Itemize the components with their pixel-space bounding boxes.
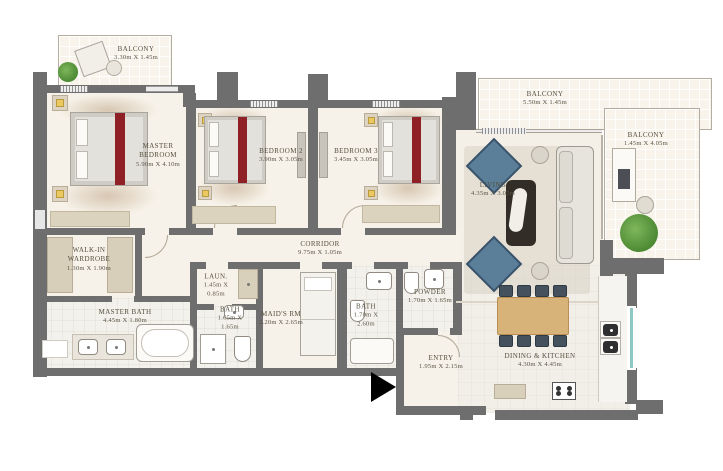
lamp-icon: [368, 190, 375, 197]
room-name: BEDROOM 2: [241, 147, 321, 156]
pillow: [209, 122, 219, 147]
washer: [238, 269, 258, 299]
room-name: BALCONY: [622, 131, 670, 140]
pillow: [304, 277, 332, 291]
bathtub-inner: [141, 329, 189, 357]
room-dims: 4.45m X 1.80m: [77, 317, 173, 326]
wardrobe: [50, 211, 130, 227]
shower-tub: [350, 338, 394, 364]
floor-plan: BALCONY 3.30m X 1.45m MASTER BEDROOM 5.9…: [0, 0, 723, 471]
room-dims: 4.35m X 3.05m: [460, 190, 526, 199]
shower: [200, 334, 226, 364]
room-dims: 1.95m X 2.15m: [418, 363, 464, 372]
nightstand: [52, 95, 68, 111]
washer-door-icon: [247, 283, 250, 286]
lamp-icon: [202, 190, 209, 197]
room-name: BALCONY: [485, 90, 605, 99]
sofa-cushion: [559, 207, 573, 259]
wardrobe: [192, 206, 276, 224]
wall: [237, 228, 341, 235]
window: [250, 101, 278, 107]
room-dims: 1.70m X 2.60m: [345, 312, 387, 330]
sofa-cushion: [559, 151, 573, 203]
room-name: LAUN.: [195, 272, 237, 281]
room-label-living: LIVING 4.35m X 3.05m: [460, 181, 526, 199]
room-dims: 1.45m X 0.85m: [195, 282, 237, 300]
stove: [552, 382, 576, 400]
sink: [366, 272, 392, 290]
bathtub: [136, 324, 194, 362]
wardrobe: [362, 205, 440, 223]
entry-arrow-icon: [371, 372, 396, 402]
living-balcony-window: [601, 135, 603, 239]
room-label-master-bedroom: MASTER BEDROOM 5.90m X 4.10m: [129, 142, 187, 170]
wall: [322, 262, 352, 269]
room-label-bath-2: BATH 1.65m X 1.65m: [209, 305, 251, 332]
room-dims: 1.70m X 1.65m: [402, 297, 458, 306]
room-dims: 3.90m X 3.05m: [241, 156, 321, 165]
nightstand: [364, 113, 378, 127]
room-name: MAID'S RM: [256, 310, 306, 319]
faucet-icon: [433, 278, 436, 281]
balcony-door: [146, 86, 178, 92]
plant: [58, 62, 78, 82]
blanket-line: [301, 319, 335, 320]
window: [60, 86, 88, 92]
kitchen-sink: [603, 324, 618, 336]
room-name: CORRIDOR: [265, 240, 375, 249]
room-label-bedroom-2: BEDROOM 2 3.90m X 3.05m: [241, 147, 321, 165]
dining-chair: [553, 335, 567, 347]
room-label-entry: ENTRY 1.95m X 2.15m: [418, 354, 464, 372]
nightstand: [364, 186, 378, 200]
room-label-balcony-top-right: BALCONY 5.50m X 1.45m: [485, 90, 605, 108]
wall: [308, 74, 328, 102]
wall: [396, 328, 438, 335]
room-name: WALK-IN WARDROBE: [61, 246, 117, 265]
kitchen-window-glass: [630, 308, 633, 368]
pillow: [76, 151, 88, 179]
room-name: MASTER BEDROOM: [129, 142, 187, 161]
room-name: DINING & KITCHEN: [480, 352, 600, 361]
drain-icon: [610, 329, 613, 332]
room-dims: 5.50m X 1.45m: [485, 99, 605, 108]
room-dims: 1.65m X 1.65m: [209, 315, 251, 333]
room-dims: 4.30m X 4.45m: [480, 361, 600, 370]
toilet: [234, 336, 251, 362]
wall: [33, 368, 403, 376]
wall: [374, 262, 408, 269]
dining-chair: [499, 335, 513, 347]
room-dims: 1.30m X 1.90m: [61, 265, 117, 274]
faucet-icon: [378, 280, 381, 283]
room-label-master-bath: MASTER BATH 4.45m X 1.80m: [77, 308, 173, 326]
room-label-powder: POWDER 1.70m X 1.65m: [402, 288, 458, 306]
sink: [424, 269, 444, 289]
faucet-icon: [87, 346, 90, 349]
dining-chair: [517, 285, 531, 297]
room-label-walk-in-wardrobe: WALK-IN WARDROBE 1.30m X 1.90m: [61, 246, 117, 274]
drain-icon: [212, 348, 215, 351]
room-label-maids-room: MAID'S RM 2.20m X 2.65m: [256, 310, 306, 328]
dining-chair: [553, 285, 567, 297]
balcony-table: [636, 196, 654, 214]
burner-icon: [556, 391, 561, 396]
room-dims: 3.30m X 1.45m: [76, 54, 196, 63]
kitchen-sink: [603, 341, 618, 353]
room-name: BALCONY: [76, 45, 196, 54]
lamp-icon: [56, 190, 64, 198]
wall: [495, 410, 638, 420]
room-name: BATH: [345, 302, 387, 311]
room-label-bedroom-3: BEDROOM 3 3.45m X 3.05m: [325, 147, 387, 165]
sofa: [556, 146, 594, 264]
nightstand: [52, 186, 68, 202]
wall: [33, 296, 112, 302]
bed-bedroom-3: [378, 116, 440, 184]
dining-chair: [535, 285, 549, 297]
room-dims: 3.45m X 3.05m: [325, 156, 387, 165]
sink: [78, 339, 98, 355]
room-dims: 2.20m X 2.65m: [256, 319, 306, 328]
room-dims: 9.75m X 1.05m: [265, 249, 375, 258]
plant: [620, 214, 658, 252]
drain-icon: [610, 346, 613, 349]
dining-chair: [535, 335, 549, 347]
room-dims: 1.45m X 4.05m: [622, 140, 670, 149]
room-label-balcony-top-left: BALCONY 3.30m X 1.45m: [76, 45, 196, 63]
room-label-laundry: LAUN. 1.45m X 0.85m: [195, 272, 237, 299]
nightstand: [198, 186, 212, 200]
room-name: ENTRY: [418, 354, 464, 363]
wall: [134, 296, 196, 302]
wall: [450, 328, 462, 335]
wall: [610, 258, 664, 274]
window: [482, 128, 526, 134]
room-name: BATH: [209, 305, 251, 314]
bed-runner: [115, 113, 125, 185]
sink: [106, 339, 126, 355]
wall: [442, 100, 456, 230]
cabinet: [494, 384, 526, 399]
lounge-chair: [612, 148, 636, 202]
room-name: MASTER BATH: [77, 308, 173, 317]
wall: [228, 262, 300, 269]
window: [35, 210, 45, 229]
room-dims: 5.90m X 4.10m: [129, 161, 187, 170]
pillow: [76, 119, 88, 146]
pillow: [209, 151, 219, 177]
lamp-icon: [368, 117, 375, 124]
lamp-icon: [56, 99, 64, 107]
wall: [33, 228, 145, 235]
dining-chair: [517, 335, 531, 347]
room-label-balcony-right: BALCONY 1.45m X 4.05m: [622, 131, 670, 149]
room-label-bath-3: BATH 1.70m X 2.60m: [345, 302, 387, 329]
dining-table: [497, 297, 569, 335]
bath-niche: [42, 340, 68, 358]
wall: [217, 72, 238, 102]
wall: [135, 235, 142, 296]
room-name: POWDER: [402, 288, 458, 297]
wall: [365, 228, 456, 235]
room-label-dining-kitchen: DINING & KITCHEN 4.30m X 4.45m: [480, 352, 600, 370]
room-name: LIVING: [460, 181, 526, 190]
wall: [460, 410, 473, 420]
room-name: BEDROOM 3: [325, 147, 387, 156]
side-table: [531, 262, 549, 280]
side-table: [531, 146, 549, 164]
burner-icon: [567, 391, 572, 396]
wall: [396, 335, 404, 414]
pillow: [383, 122, 393, 147]
faucet-icon: [115, 346, 118, 349]
bed-runner: [412, 117, 421, 183]
dining-chair: [499, 285, 513, 297]
lounge-throw: [618, 169, 630, 189]
room-label-corridor: CORRIDOR 9.75m X 1.05m: [265, 240, 375, 258]
wall: [169, 228, 213, 235]
wall: [636, 400, 663, 414]
